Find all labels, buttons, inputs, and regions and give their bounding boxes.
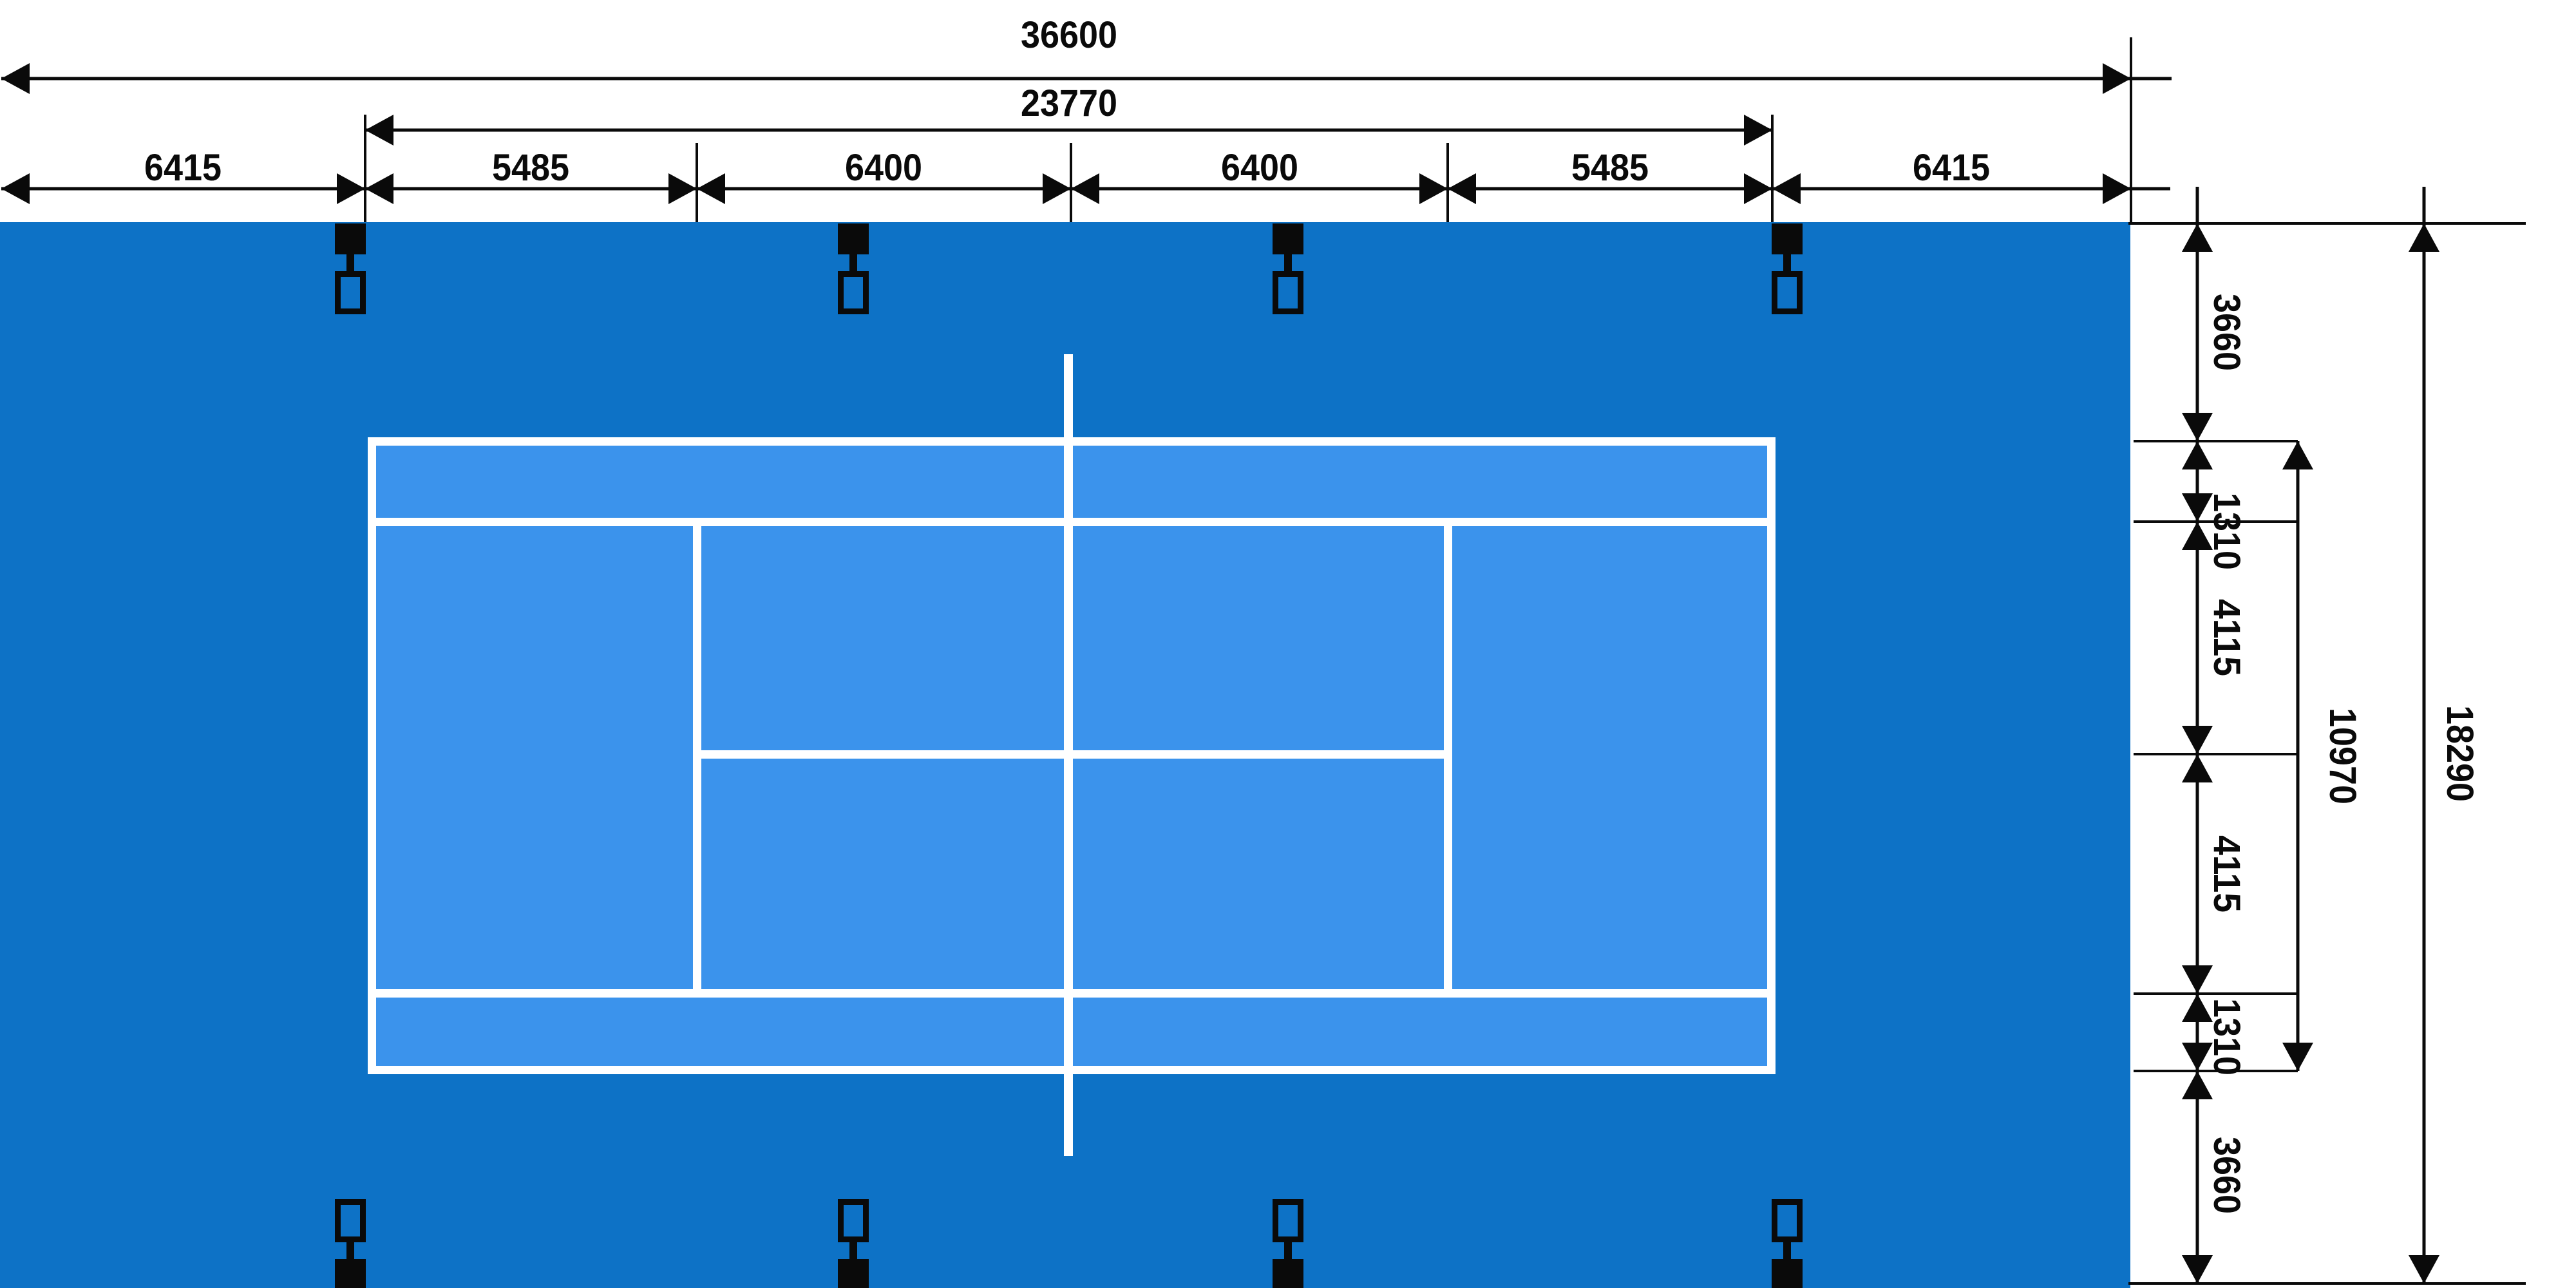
- post-stem: [1783, 1242, 1791, 1259]
- post-cap: [838, 1259, 869, 1288]
- post-cap: [838, 223, 869, 254]
- tennis-court-plan-page: 36600 23770 6415 5485 6400 6400 5485 641…: [0, 0, 2576, 1288]
- post-cap: [335, 1259, 366, 1288]
- post-stem: [1783, 254, 1791, 271]
- label-side-segment: 4115: [2206, 835, 2248, 913]
- post-stem: [1284, 1242, 1292, 1259]
- post-cap: [335, 223, 366, 254]
- post-stem: [849, 254, 857, 271]
- label-overall-depth: 18290: [2439, 705, 2481, 802]
- post-cap: [1772, 223, 1803, 254]
- net-line: [1064, 354, 1073, 1156]
- label-top-segment: 5485: [492, 147, 569, 189]
- label-overall-width: 36600: [1021, 14, 1117, 56]
- service-line-right: [1444, 526, 1452, 989]
- label-side-segment: 3660: [2206, 1137, 2248, 1214]
- label-top-segment: 6400: [845, 147, 922, 189]
- court-plan-diagram: 36600 23770 6415 5485 6400 6400 5485 641…: [0, 0, 2576, 1288]
- post-cap: [1772, 1259, 1803, 1288]
- label-court-width: 10970: [2322, 708, 2363, 804]
- label-side-segment: 1310: [2206, 998, 2248, 1075]
- service-line-left: [693, 526, 701, 989]
- label-court-length: 23770: [1021, 82, 1117, 124]
- label-top-segment: 5485: [1571, 147, 1649, 189]
- post-stem: [346, 1242, 354, 1259]
- label-top-segment: 6415: [144, 147, 222, 189]
- label-side-segment: 3660: [2206, 294, 2248, 371]
- post-cap: [1273, 223, 1303, 254]
- label-top-segment: 6400: [1221, 147, 1298, 189]
- post-stem: [849, 1242, 857, 1259]
- post-stem: [346, 254, 354, 271]
- post-cap: [1273, 1259, 1303, 1288]
- post-stem: [1284, 254, 1292, 271]
- label-side-segment: 1310: [2206, 493, 2248, 570]
- label-side-segment: 4115: [2206, 599, 2248, 676]
- label-top-segment: 6415: [1913, 147, 1990, 189]
